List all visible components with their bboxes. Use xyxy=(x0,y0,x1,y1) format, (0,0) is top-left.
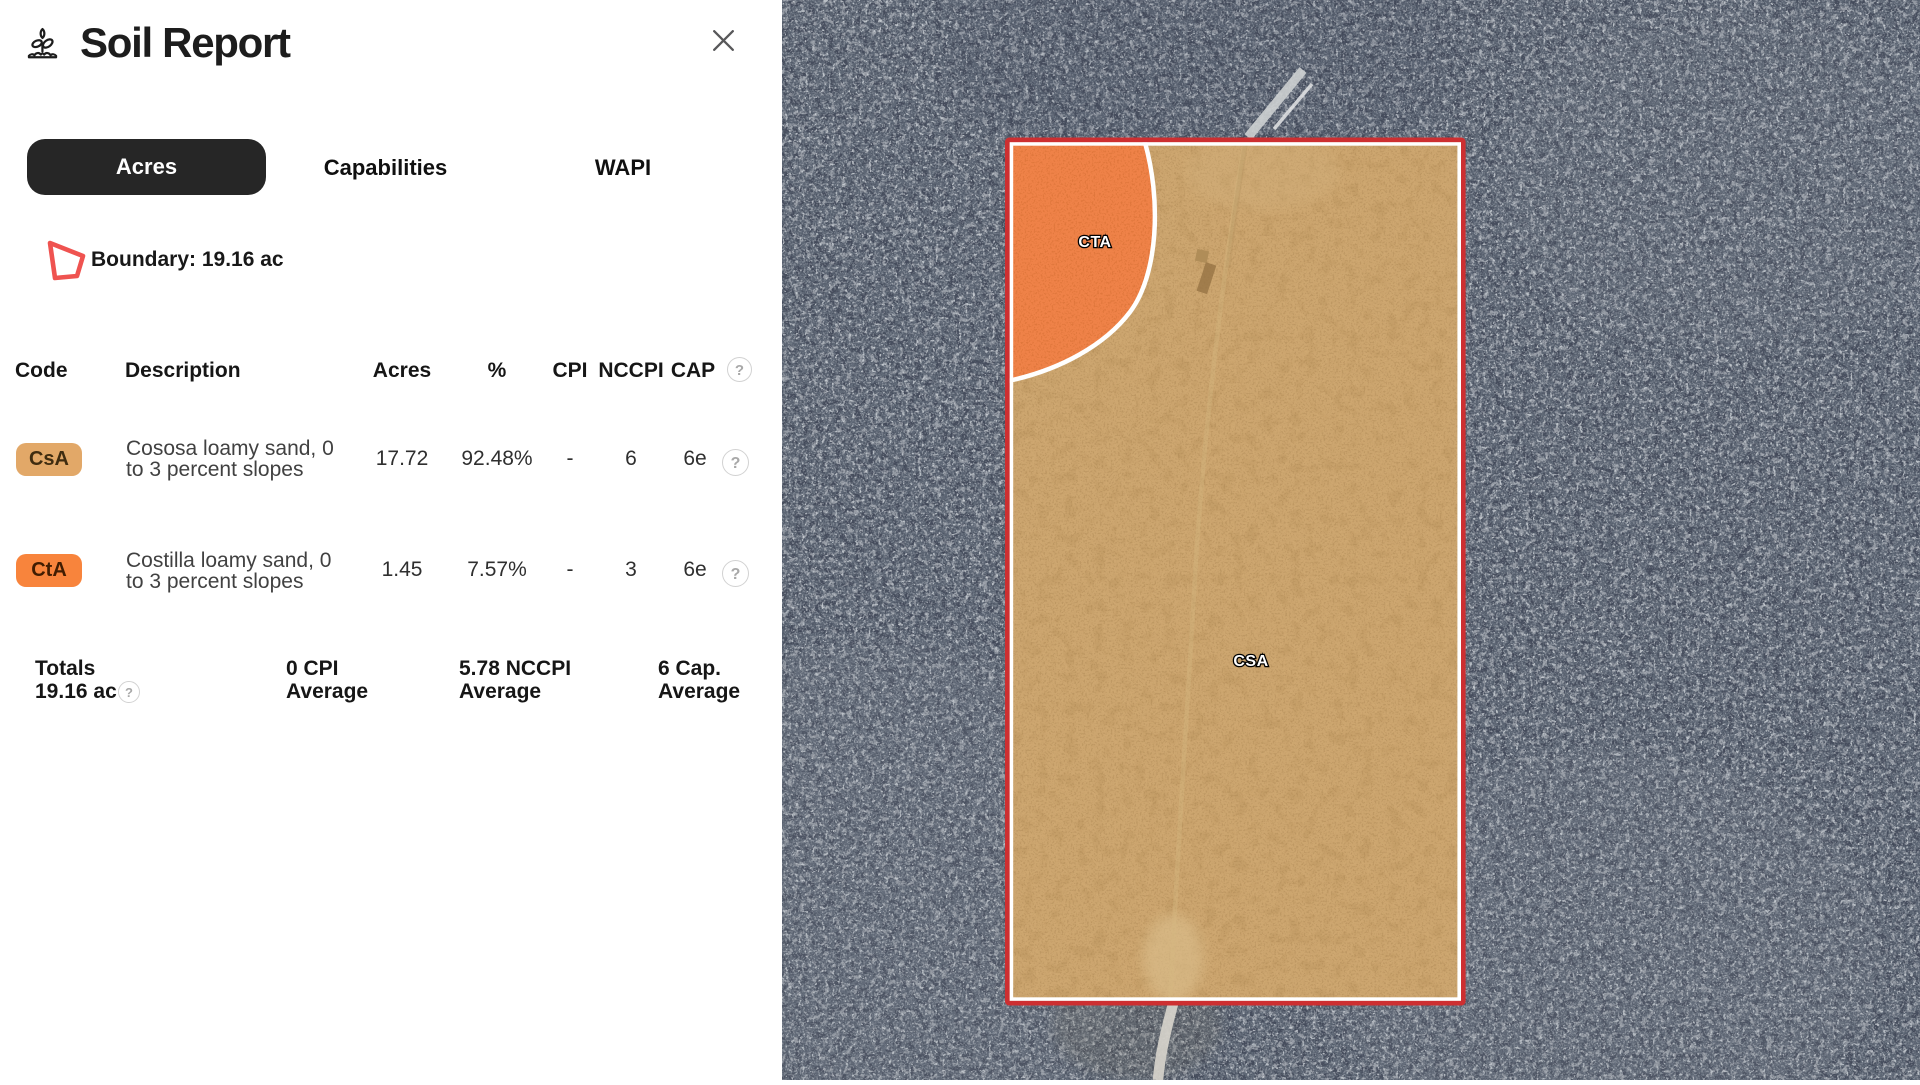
svg-text:CTA: CTA xyxy=(1078,234,1111,251)
svg-text:CSA: CSA xyxy=(1233,653,1268,670)
